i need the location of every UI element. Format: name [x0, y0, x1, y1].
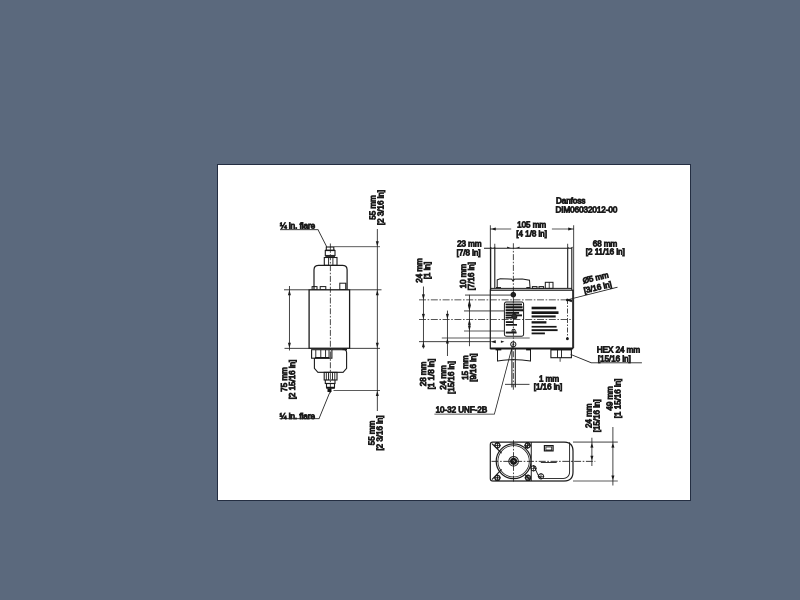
svg-text:49 mm[1 15/16 in]: 49 mm[1 15/16 in] [605, 379, 622, 419]
svg-text:HEX 24 mm: HEX 24 mm [597, 345, 640, 354]
svg-text:Danfoss: Danfoss [556, 196, 585, 205]
svg-text:10-32 UNF-2B: 10-32 UNF-2B [436, 405, 488, 414]
svg-text:10 mm[7/16 in]: 10 mm[7/16 in] [459, 262, 476, 290]
svg-text:¼ in. flare: ¼ in. flare [280, 412, 316, 421]
svg-text:15 mm[9/16 in]: 15 mm[9/16 in] [461, 353, 478, 381]
svg-text:[15/16 in]: [15/16 in] [598, 355, 631, 364]
svg-text:55 mm[2 3/16 in]: 55 mm[2 3/16 in] [368, 190, 385, 225]
svg-text:23 mm: 23 mm [457, 240, 482, 249]
svg-text:24 mm[1 in]: 24 mm[1 in] [415, 258, 432, 283]
svg-text:24 mm[15/16 in]: 24 mm[15/16 in] [439, 361, 456, 394]
svg-text:[2 11/16 in]: [2 11/16 in] [586, 248, 625, 257]
svg-text:[1/16 in]: [1/16 in] [534, 382, 562, 391]
svg-text:[4 1/8 in]: [4 1/8 in] [516, 229, 547, 238]
svg-text:¼ in. flare: ¼ in. flare [280, 222, 316, 231]
svg-text:DIM06032012-00: DIM06032012-00 [556, 205, 618, 214]
svg-text:24 mm[15/16 in]: 24 mm[15/16 in] [584, 399, 601, 432]
svg-text:105 mm: 105 mm [517, 220, 546, 229]
svg-text:55 mm[2 3/16 in]: 55 mm[2 3/16 in] [367, 415, 384, 450]
svg-text:75 mm[2 15/16 in]: 75 mm[2 15/16 in] [280, 360, 297, 400]
svg-text:28 mm[1 1/8 in]: 28 mm[1 1/8 in] [419, 359, 436, 390]
svg-text:[7/8 in]: [7/8 in] [457, 248, 481, 257]
